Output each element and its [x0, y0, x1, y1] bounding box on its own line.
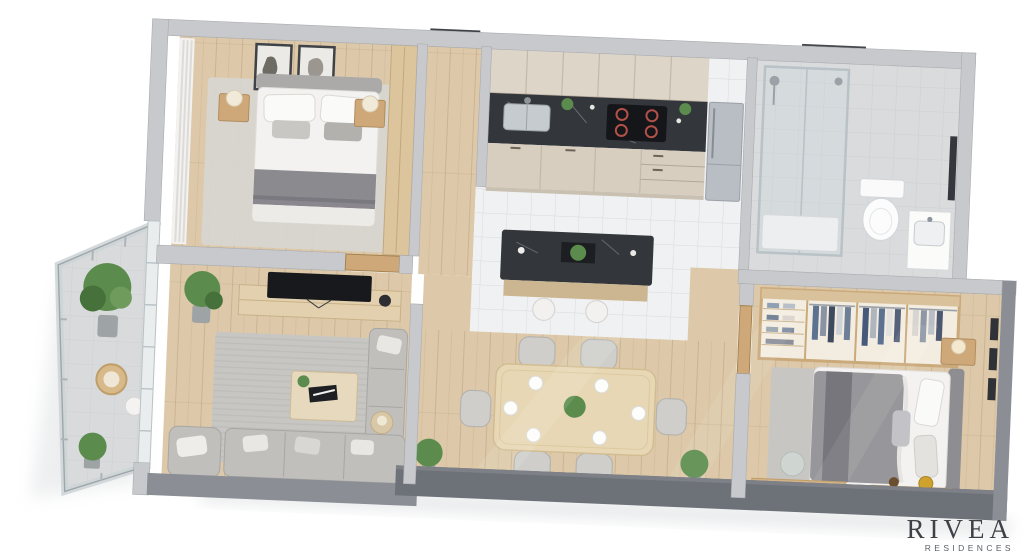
- table-lamp: [362, 96, 379, 113]
- bedroom2-nightstand: [941, 338, 976, 365]
- sofa-pillow: [242, 434, 268, 452]
- lower-cabinets: [486, 143, 706, 200]
- rattan-chair: [96, 364, 127, 395]
- pillow: [914, 435, 939, 478]
- room-living: [161, 264, 412, 486]
- induction-cooktop: [606, 104, 667, 142]
- wall-stub: [399, 255, 413, 274]
- refrigerator: [705, 102, 743, 201]
- wall-left-upper: [144, 19, 168, 221]
- table-lamp: [951, 339, 966, 354]
- shower-tray: [761, 214, 838, 251]
- bar-stool: [585, 300, 608, 323]
- armchair-pillow: [176, 435, 208, 458]
- vanity-sink: [907, 211, 951, 271]
- hall-floor-planks: [418, 44, 482, 276]
- entry-hall: [418, 28, 482, 276]
- bar-stool: [532, 298, 555, 321]
- floor-plan-render: [0, 0, 1024, 559]
- room-bathroom: [749, 42, 962, 278]
- accent-pillow: [272, 120, 311, 140]
- floor-plan-page: RIVEA RESIDENCES: [0, 0, 1024, 559]
- coffee-table: [290, 371, 358, 422]
- nightstand-left: [218, 90, 249, 122]
- bedroom2-door: [737, 306, 752, 374]
- brand-name: RIVEA: [907, 515, 1015, 543]
- table-lamp: [226, 90, 243, 107]
- pillow: [264, 94, 315, 122]
- desk-chair: [780, 451, 805, 476]
- walk-in-shower: [757, 66, 849, 255]
- brand-logo: RIVEA RESIDENCES: [907, 515, 1015, 553]
- master-door: [345, 254, 400, 272]
- nightstand-right: [354, 95, 385, 127]
- double-bed: [250, 73, 382, 226]
- room-master-bedroom: [171, 34, 418, 259]
- accent-pillow: [891, 410, 910, 447]
- apartment: [30, 12, 1024, 539]
- sofa-pillow: [351, 439, 375, 455]
- corridor-floor: [422, 274, 472, 332]
- brand-tagline: RESIDENCES: [907, 544, 1015, 553]
- wall-bedroom2-left-a: [739, 284, 754, 307]
- side-table: [370, 411, 393, 434]
- armchair: [167, 426, 221, 478]
